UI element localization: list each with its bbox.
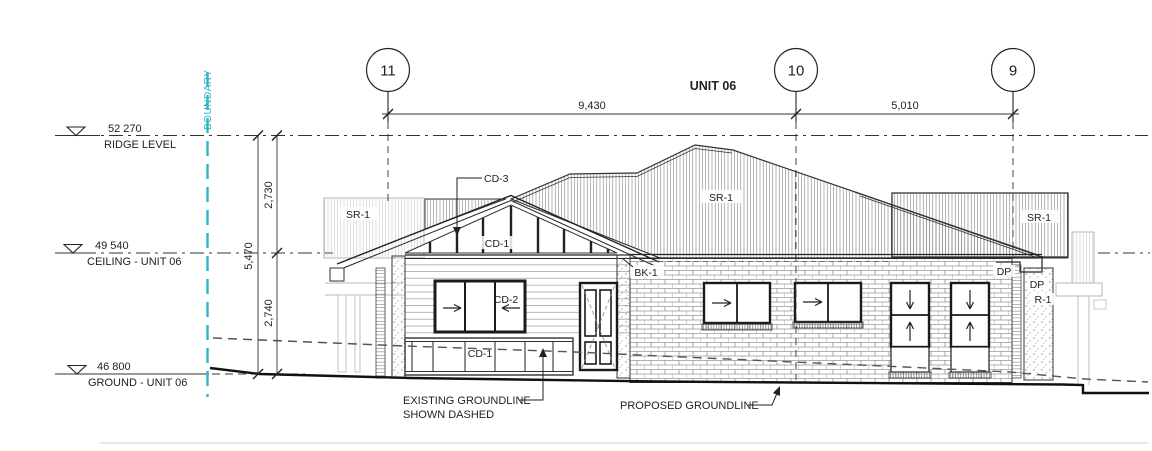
dim-2740: 2,740 [263, 299, 275, 327]
vertical-dims: 2,730 5,470 2,740 [243, 131, 282, 380]
proposed-leader-arrow-icon [773, 386, 780, 396]
label-dp: DP [1030, 279, 1045, 291]
dim-9430: 9,430 [578, 100, 606, 112]
ground-level-value: 46 800 [97, 361, 131, 373]
elevation-drawing-sheet: BOUNDARY 52 270 RIDGE LEVEL 49 540 CEILI… [0, 0, 1152, 451]
label-cd1-band: CD-1 [468, 348, 493, 360]
grid-label-11: 11 [380, 63, 396, 80]
note-existing-groundline-1: EXISTING GROUNDLINE [403, 395, 531, 407]
dim-5470: 5,470 [243, 242, 255, 270]
dim-5010: 5,010 [891, 100, 919, 112]
label-sr1-left: SR-1 [346, 209, 370, 221]
elevation-drawing: BOUNDARY 52 270 RIDGE LEVEL 49 540 CEILI… [0, 0, 1152, 451]
label-r1: R-1 [1035, 294, 1052, 306]
boundary-label: BOUNDARY [203, 70, 214, 131]
ridge-level-value: 52 270 [108, 123, 142, 135]
downpipe-left [376, 268, 385, 378]
ridge-level-label: RIDGE LEVEL [104, 139, 176, 151]
window-cd2 [435, 281, 525, 332]
corner-pier-left [392, 256, 405, 378]
downpipe-right [1012, 265, 1021, 378]
note-existing-groundline-2: SHOWN DASHED [403, 409, 494, 421]
label-bk1: BK-1 [634, 267, 658, 279]
label-cd3: CD-3 [484, 173, 509, 185]
window-4-double-hung [949, 283, 991, 378]
dim-2730: 2,730 [263, 181, 275, 209]
ridge-level-triangle-icon [67, 127, 85, 136]
window-2-sliding [793, 283, 863, 328]
pier-mid [617, 255, 630, 378]
grid-label-9: 9 [1009, 63, 1017, 80]
left-wall [376, 255, 630, 378]
window-1-sliding [702, 283, 772, 330]
ground-level-triangle-icon [68, 366, 86, 375]
label-cd1-gable: CD-1 [485, 238, 510, 250]
level-markers [64, 127, 86, 374]
unit-title: UNIT 06 [690, 79, 737, 93]
label-cd2: CD-2 [494, 294, 519, 306]
note-proposed-groundline: PROPOSED GROUNDLINE [620, 400, 759, 412]
ground-level-label: GROUND - UNIT 06 [88, 377, 187, 389]
boundary-group: BOUNDARY [203, 70, 214, 398]
grid-label-10: 10 [788, 63, 805, 80]
ceiling-level-triangle-icon [64, 245, 82, 254]
window-sill [889, 372, 931, 378]
window-sill [949, 372, 991, 378]
label-sr1-main: SR-1 [709, 192, 733, 204]
brick-wall [630, 255, 1053, 383]
window-sill [793, 322, 863, 328]
entry-door [580, 283, 617, 370]
gutter-end-left [330, 268, 344, 281]
level-texts: 52 270 RIDGE LEVEL 49 540 CEILING - UNIT… [87, 123, 187, 389]
label-dp-small: DP [997, 266, 1012, 278]
window-3-double-hung [889, 283, 931, 378]
label-sr1-right: SR-1 [1027, 212, 1051, 224]
ceiling-level-value: 49 540 [95, 240, 129, 252]
ceiling-level-label: CEILING - UNIT 06 [87, 256, 182, 268]
window-sill [702, 324, 772, 330]
